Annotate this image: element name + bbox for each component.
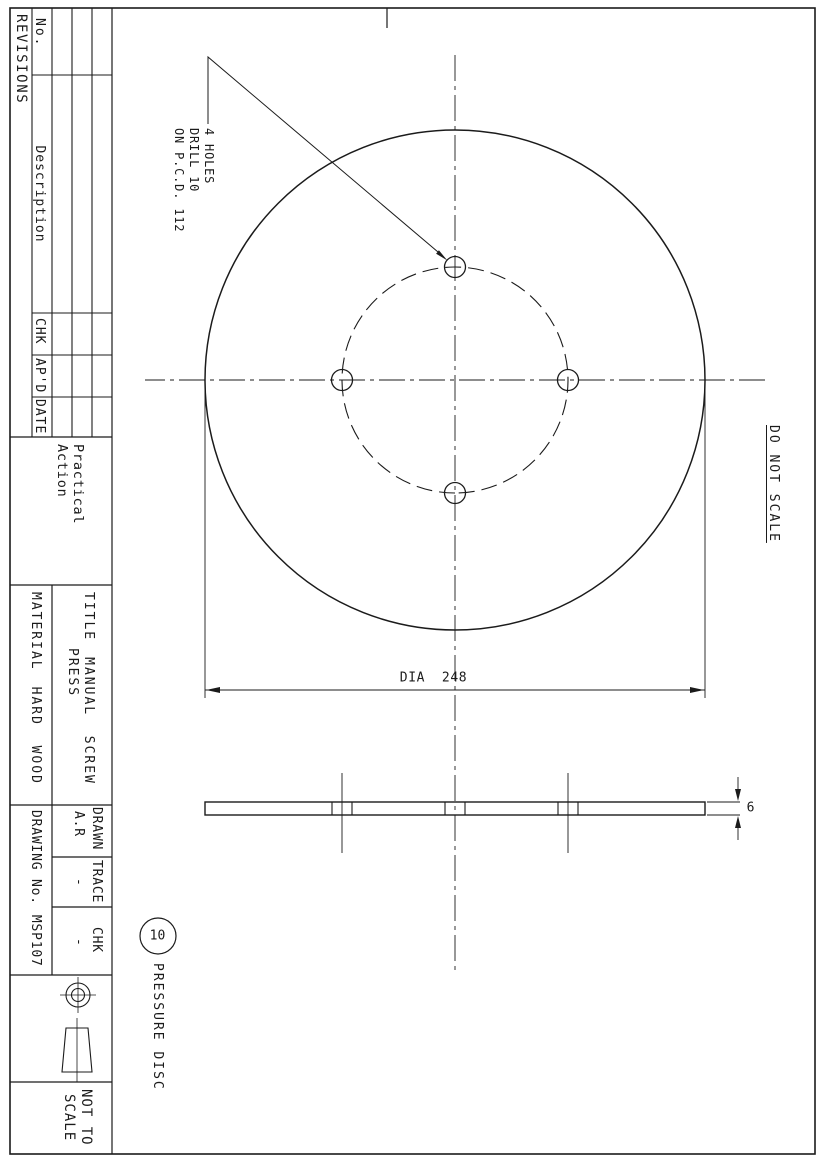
- thickness-dimension-text: 6: [740, 801, 762, 816]
- drawing-no-label: DRAWING No.: [28, 810, 43, 905]
- thickness-arrow-right: [735, 816, 741, 828]
- dia-dimension-text: DIA 248: [394, 671, 474, 686]
- thickness-dimension-lines: [707, 777, 740, 840]
- material-value: HARD WOOD: [28, 687, 43, 785]
- hole-note-leader: [208, 57, 438, 252]
- drawing-sheet: REVISIONS No. Description CHK AP'D DATE …: [0, 0, 826, 1169]
- hole-note-line3: ON P.C.D. 112: [171, 128, 186, 232]
- title-row: TITLEMANUAL SCREW: [81, 592, 96, 785]
- logo-line1: Practical: [70, 444, 85, 524]
- chk-label: CHK: [89, 927, 104, 953]
- dia-arrow-bottom: [206, 687, 220, 693]
- hole-note-arrow: [436, 250, 447, 260]
- scale-note-line2: SCALE: [61, 1094, 76, 1141]
- trace-label: TRACE: [89, 860, 104, 903]
- balloon-number: 10: [143, 929, 173, 944]
- drawing-no-value: MSP107: [28, 915, 43, 967]
- hole-note-line1: 4 HOLES: [201, 128, 216, 184]
- drawn-value: A.R: [71, 811, 86, 837]
- chk-value: -: [71, 938, 86, 947]
- screenshot-page: REVISIONS No. Description CHK AP'D DATE …: [0, 0, 826, 1169]
- revisions-col-chk: CHK: [32, 318, 47, 344]
- part-name: PRESSURE DISC: [150, 963, 165, 1091]
- title-label: TITLE: [81, 592, 96, 641]
- logo-line2: Action: [54, 444, 69, 498]
- projection-symbol: [60, 977, 96, 1082]
- revisions-col-apd: AP'D: [32, 358, 47, 393]
- scale-note-line1: NOT TO: [78, 1089, 93, 1146]
- hole-note-line2: DRILL 10: [186, 128, 201, 192]
- do-not-scale-note: DO NOT SCALE: [766, 425, 781, 543]
- drawn-label: DRAWN: [89, 807, 104, 850]
- dia-arrow-top: [690, 687, 704, 693]
- title-strip-dividers: [10, 437, 112, 1082]
- thickness-arrow-left: [735, 789, 741, 801]
- drawing-no-row: DRAWING No.MSP107: [28, 810, 43, 967]
- material-row: MATERIALHARD WOOD: [28, 592, 43, 785]
- trace-value: -: [71, 878, 86, 887]
- title-value-line1: MANUAL SCREW: [81, 657, 96, 785]
- material-label: MATERIAL: [28, 592, 43, 671]
- drawing-linework: [0, 0, 826, 1169]
- revisions-title: REVISIONS: [13, 14, 28, 104]
- title-value-line2: PRESS: [65, 648, 80, 697]
- revisions-col-no: No.: [32, 18, 47, 47]
- revisions-col-description: Description: [32, 75, 47, 313]
- revisions-col-date: DATE: [32, 399, 47, 434]
- sheet-border: [10, 8, 815, 1154]
